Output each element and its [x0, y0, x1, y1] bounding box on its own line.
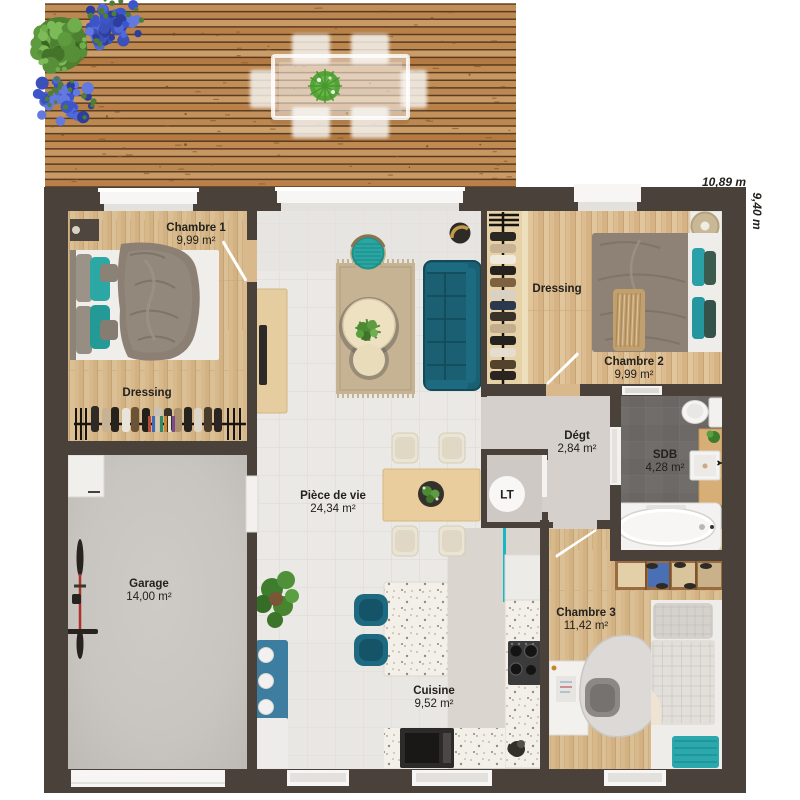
svg-text:9,52 m²: 9,52 m² [415, 698, 454, 710]
svg-text:Garage: Garage [129, 578, 169, 590]
svg-text:10,89 m: 10,89 m [702, 175, 746, 189]
svg-text:LT: LT [500, 488, 514, 502]
svg-text:Chambre 2: Chambre 2 [604, 356, 663, 368]
svg-text:Dressing: Dressing [122, 387, 171, 399]
svg-text:2,84 m²: 2,84 m² [558, 443, 597, 455]
svg-text:Cuisine: Cuisine [413, 685, 455, 697]
svg-text:11,42 m²: 11,42 m² [564, 620, 609, 632]
svg-text:9,40 m: 9,40 m [750, 192, 764, 230]
svg-text:9,99 m²: 9,99 m² [177, 235, 216, 247]
svg-text:Chambre 1: Chambre 1 [166, 222, 226, 234]
svg-text:Pièce de vie: Pièce de vie [300, 490, 366, 502]
svg-text:Dégt: Dégt [564, 430, 590, 442]
svg-text:Chambre 3: Chambre 3 [556, 607, 615, 619]
svg-text:SDB: SDB [653, 449, 677, 461]
svg-text:14,00 m²: 14,00 m² [126, 591, 172, 603]
svg-text:9,99 m²: 9,99 m² [615, 369, 654, 381]
svg-text:4,28 m²: 4,28 m² [646, 462, 685, 474]
svg-text:24,34 m²: 24,34 m² [310, 503, 356, 515]
svg-text:Dressing: Dressing [532, 283, 581, 295]
